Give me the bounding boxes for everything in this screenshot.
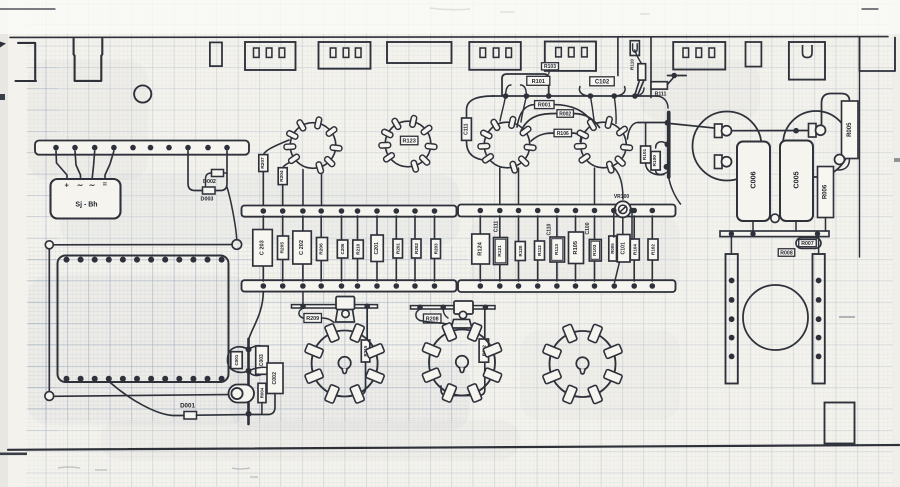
svg-text:C002: C002 [272,372,278,385]
svg-text:C001: C001 [234,354,239,365]
svg-text:R209: R209 [306,316,319,322]
svg-text:R101: R101 [532,79,545,85]
svg-text:R100: R100 [652,155,658,167]
svg-text:R106: R106 [557,131,569,137]
svg-text:D003: D003 [201,197,214,203]
svg-text:C101: C101 [621,242,627,255]
svg-text:Sj - Bh: Sj - Bh [75,202,97,209]
svg-text:=: = [103,180,108,189]
svg-text:R006: R006 [823,184,829,199]
svg-text:R203: R203 [433,243,438,254]
svg-text:R105: R105 [573,241,579,254]
svg-text:C100: C100 [585,222,591,234]
svg-text:C 203: C 203 [260,240,266,255]
svg-text:R124: R124 [478,241,484,255]
svg-text:C006: C006 [749,171,758,188]
svg-text:C201: C201 [374,242,380,255]
svg-text:C005: C005 [792,171,801,188]
svg-text:R210: R210 [356,243,361,254]
svg-text:R202: R202 [414,243,419,254]
svg-text:R206: R206 [319,243,325,255]
svg-text:C110: C110 [547,223,553,235]
svg-text:R008: R008 [780,250,793,256]
svg-text:C 202: C 202 [299,240,305,255]
svg-text:R112: R112 [537,245,542,256]
svg-text:R204: R204 [279,170,285,182]
svg-text:R120: R120 [518,245,523,256]
svg-text:R005: R005 [610,243,615,254]
svg-text:R001: R001 [538,103,551,109]
svg-text:C206: C206 [340,243,345,254]
svg-text:C111: C111 [494,221,500,233]
svg-text:R121: R121 [497,245,503,257]
svg-text:R201: R201 [395,243,400,254]
svg-text:R205: R205 [280,242,286,254]
svg-text:R104: R104 [632,244,637,255]
svg-text:R007: R007 [801,241,814,247]
svg-text:R004: R004 [260,387,265,398]
svg-text:D001: D001 [180,403,195,410]
svg-text:R002: R002 [559,111,571,117]
svg-text:C003: C003 [259,354,265,366]
svg-text:C102: C102 [595,79,610,85]
svg-text:+: + [65,181,70,190]
svg-text:R113: R113 [554,244,560,256]
svg-text:R103: R103 [592,244,598,256]
svg-text:∼: ∼ [77,181,84,190]
svg-text:R005: R005 [847,122,853,137]
svg-text:R123: R123 [403,139,416,145]
svg-text:R110: R110 [630,59,635,70]
svg-text:C111: C111 [464,123,470,135]
svg-text:VR100: VR100 [614,194,630,200]
svg-text:R207: R207 [260,157,266,169]
svg-text:∼: ∼ [89,181,96,190]
svg-text:R101: R101 [642,148,648,160]
svg-text:R103: R103 [544,64,556,70]
svg-text:R102: R102 [651,244,656,255]
